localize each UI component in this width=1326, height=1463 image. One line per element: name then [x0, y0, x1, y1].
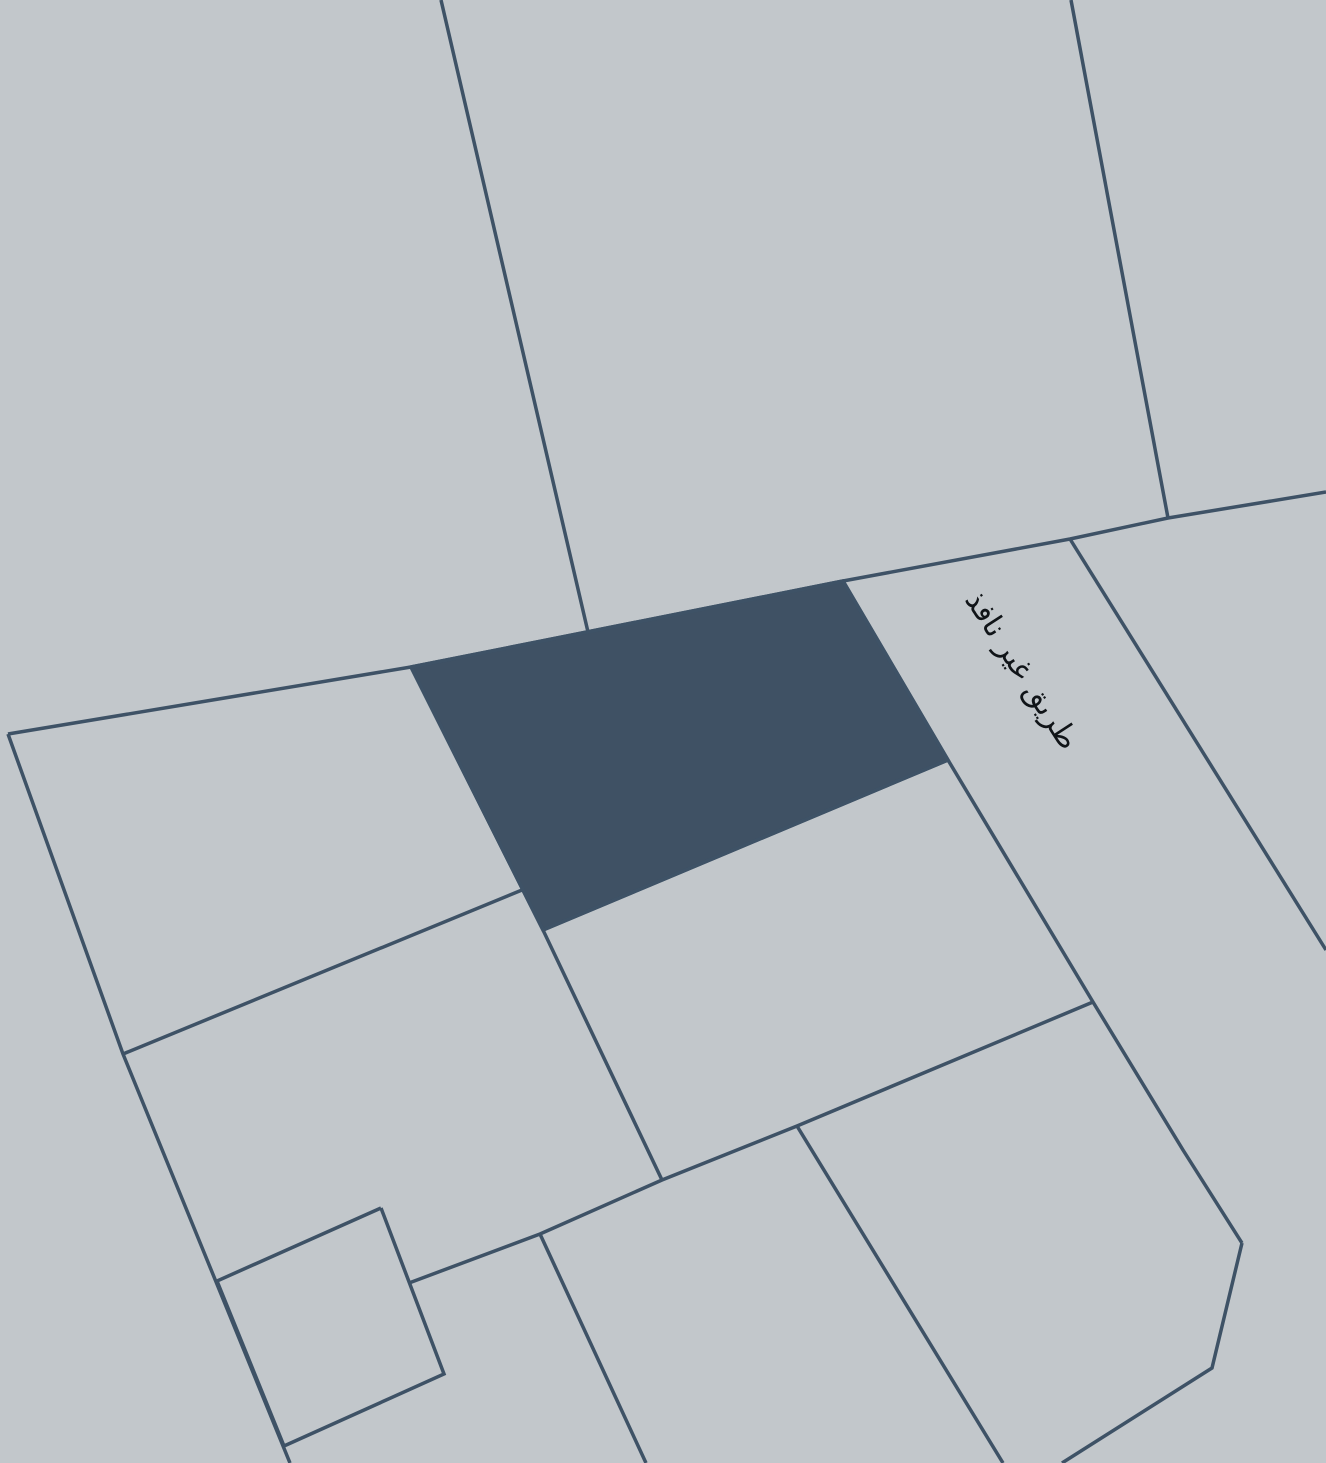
- map-canvas[interactable]: طريق غير نافذ: [0, 0, 1326, 1463]
- cadastral-map[interactable]: طريق غير نافذ: [0, 0, 1326, 1463]
